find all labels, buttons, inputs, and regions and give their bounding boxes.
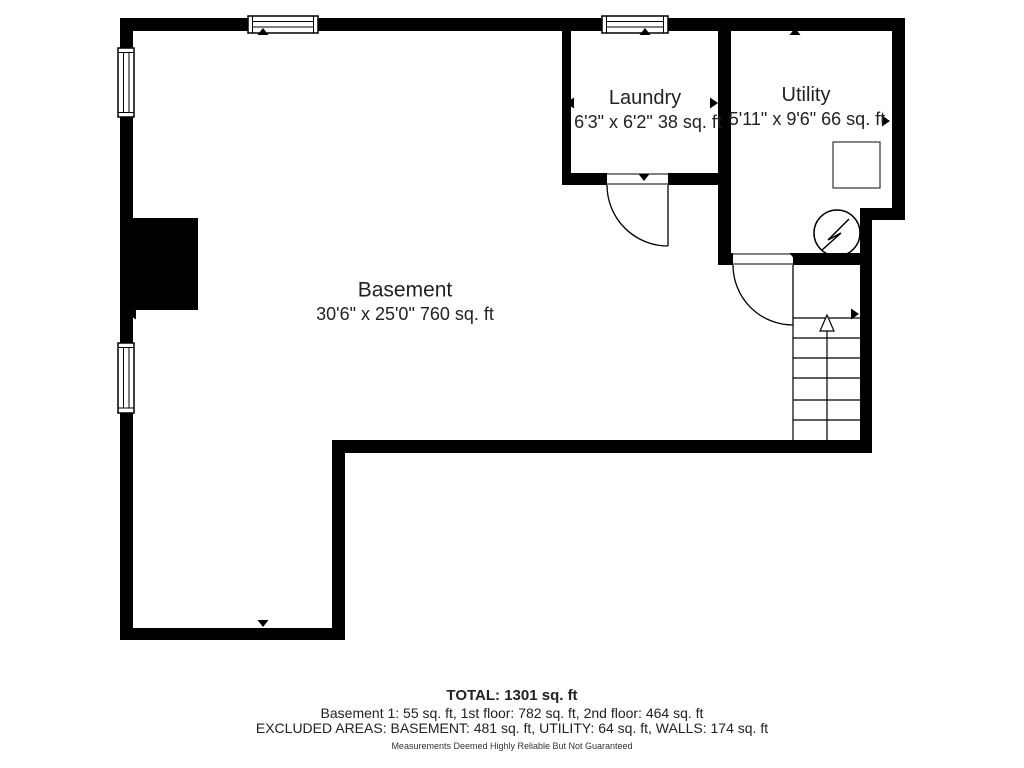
utility-door-icon xyxy=(733,254,793,325)
wall-laundry-bottom-right xyxy=(668,173,725,185)
marker-right-laundry-icon xyxy=(710,98,718,109)
laundry-room-label: Laundry xyxy=(609,88,681,108)
utility-room-dimensions: 5'11" x 9'6" 66 sq. ft xyxy=(729,110,885,128)
wall-right-upper xyxy=(892,18,905,220)
electrical-panel xyxy=(814,210,860,256)
laundry-door-icon xyxy=(607,174,668,246)
chimney-block xyxy=(120,218,198,310)
wall-laundry-utility-divider xyxy=(718,31,731,265)
stairs-icon xyxy=(793,315,860,441)
wall-top xyxy=(120,18,905,31)
wall-bottom-mid xyxy=(332,440,872,453)
window-top-basement-icon xyxy=(248,16,318,33)
laundry-room-dimensions: 6'3" x 6'2" 38 sq. ft xyxy=(574,113,722,131)
wall-laundry-bottom-left xyxy=(562,173,607,185)
window-top-laundry-icon xyxy=(602,16,668,33)
marker-down-laundry-door-icon xyxy=(639,174,650,181)
windows xyxy=(118,16,668,413)
wall-right-lower xyxy=(860,208,872,453)
floor-plan-page: Basement 30'6" x 25'0" 760 sq. ft Laundr… xyxy=(0,0,1024,768)
basement-room-label: Basement xyxy=(358,280,453,301)
basement-room-dimensions: 30'6" x 25'0" 760 sq. ft xyxy=(316,305,494,323)
disclaimer-text: Measurements Deemed Highly Reliable But … xyxy=(0,741,1024,751)
total-area-text: TOTAL: 1301 sq. ft xyxy=(0,687,1024,704)
marker-down-basement-icon xyxy=(258,620,269,627)
wall-bottom-left xyxy=(120,628,345,640)
excluded-areas-text: EXCLUDED AREAS: BASEMENT: 481 sq. ft, UT… xyxy=(0,720,1024,736)
water-heater-icon xyxy=(833,142,880,188)
circle-lightning-bolt-icon xyxy=(814,210,860,256)
wall-utility-bottom-right xyxy=(793,253,872,265)
wall-utility-bottom-left xyxy=(722,253,733,265)
utility-room-label: Utility xyxy=(782,85,831,105)
wall-laundry-left xyxy=(562,31,571,185)
window-left-lower-icon xyxy=(118,343,134,413)
floor-areas-text: Basement 1: 55 sq. ft, 1st floor: 782 sq… xyxy=(0,705,1024,721)
window-left-upper-icon xyxy=(118,48,134,117)
wall-step-left xyxy=(332,440,345,640)
